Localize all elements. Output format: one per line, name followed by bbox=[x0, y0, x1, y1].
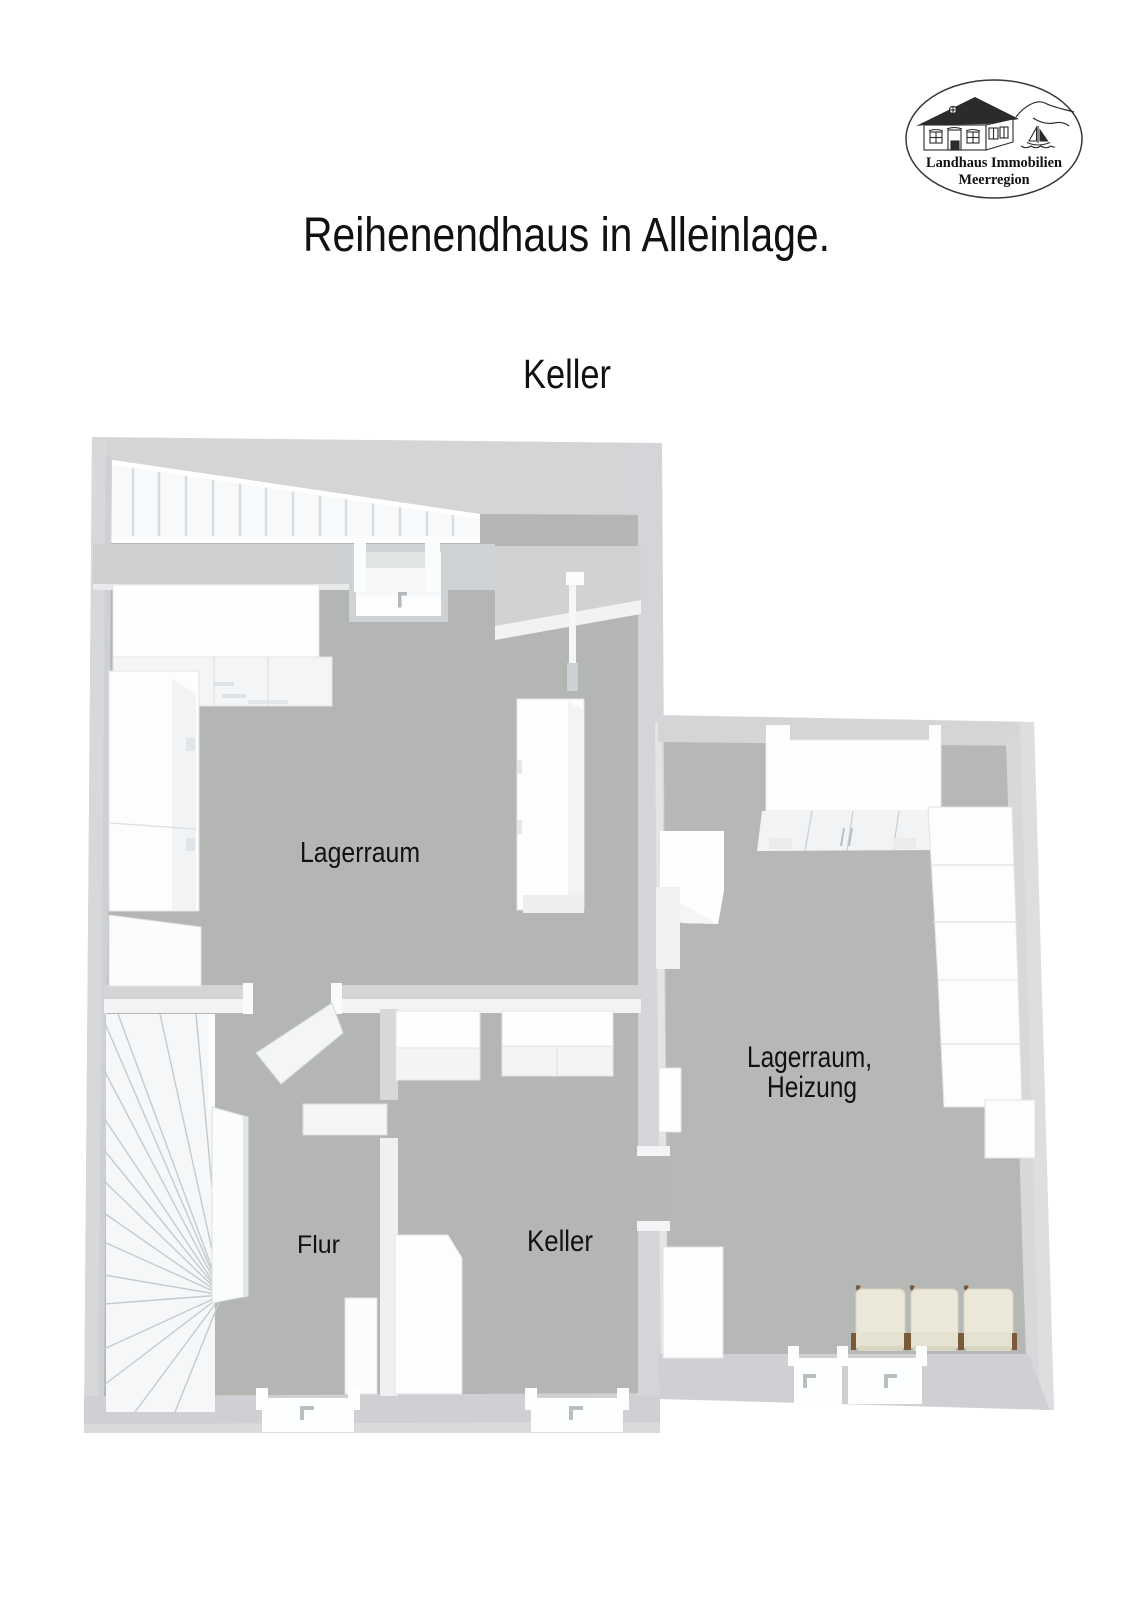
svg-text:Keller: Keller bbox=[527, 1225, 593, 1258]
svg-text:Reihenendhaus in Alleinlage.: Reihenendhaus in Alleinlage. bbox=[303, 209, 830, 262]
svg-text:Flur: Flur bbox=[297, 1231, 340, 1259]
svg-text:Keller: Keller bbox=[523, 351, 611, 397]
svg-text:Lagerraum,: Lagerraum, bbox=[747, 1041, 872, 1074]
svg-text:Landhaus Immobilien: Landhaus Immobilien bbox=[926, 155, 1063, 171]
svg-text:Heizung: Heizung bbox=[767, 1071, 857, 1104]
svg-text:Meerregion: Meerregion bbox=[959, 172, 1031, 188]
svg-text:Lagerraum: Lagerraum bbox=[300, 837, 420, 869]
